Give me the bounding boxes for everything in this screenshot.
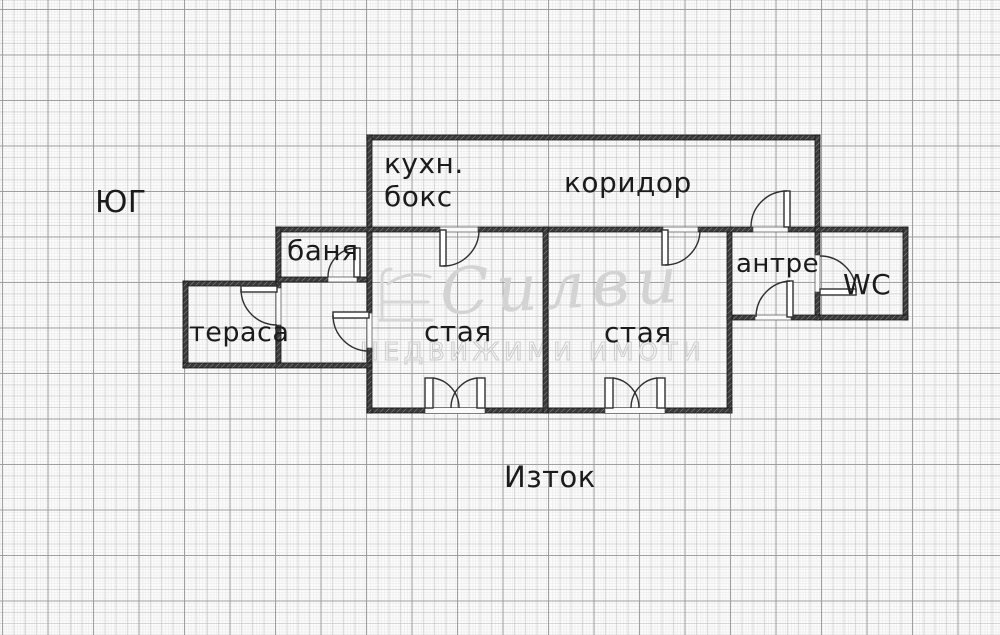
room-label-room-right: стая bbox=[604, 317, 672, 350]
room-label-hall: антре bbox=[736, 249, 819, 279]
door-arc bbox=[756, 281, 790, 317]
french-window-room1 bbox=[425, 378, 485, 408]
wall-right-upper bbox=[815, 135, 820, 255]
wall-rooms-divider bbox=[543, 227, 548, 413]
wall-bath-bottom-a bbox=[276, 277, 328, 282]
wall-bath-bottom-b bbox=[357, 277, 367, 282]
opening-hall-bottom-door bbox=[755, 315, 791, 320]
wall-hall-bottom-right bbox=[791, 315, 820, 320]
compass-south-label: ЮГ bbox=[95, 185, 147, 220]
wall-left-upper bbox=[367, 135, 372, 313]
room-label-kitchen: кухн.бокс bbox=[384, 148, 464, 214]
room-label-corridor: коридор bbox=[564, 167, 692, 200]
wall-wc-bottom bbox=[815, 315, 908, 320]
wall-wc-top bbox=[815, 227, 908, 232]
wall-bottom-a bbox=[367, 408, 425, 413]
opening-bath-door bbox=[328, 277, 357, 282]
door-kitchen-room1 bbox=[440, 230, 479, 266]
door-arc bbox=[333, 315, 369, 351]
wall-terrace-top bbox=[183, 281, 276, 286]
room-label-room-left: стая bbox=[424, 316, 492, 349]
opening-window-room1 bbox=[425, 408, 485, 414]
wall-top bbox=[367, 135, 820, 140]
wall-interior-h-b bbox=[478, 227, 663, 232]
floor-plan-page: { "compass": { "south_label": "ЮГ", "eas… bbox=[0, 0, 1000, 635]
floor-plan-drawing bbox=[0, 0, 1000, 635]
window-arc bbox=[451, 378, 477, 408]
kitchen-line1: кухн. bbox=[384, 147, 464, 180]
door-corridor-room2 bbox=[662, 230, 700, 265]
door-arc bbox=[751, 191, 787, 227]
opening-hall-top-door bbox=[753, 227, 788, 232]
french-window-room2 bbox=[605, 378, 665, 408]
room-label-wc: WC bbox=[843, 269, 891, 302]
door-vestibule-room1 bbox=[333, 312, 369, 351]
wall-left-lower bbox=[367, 348, 372, 413]
wall-interior-h-c bbox=[698, 227, 753, 232]
wall-bottom-c bbox=[665, 408, 732, 413]
kitchen-line2: бокс bbox=[384, 180, 453, 213]
room-label-terrace: тераса bbox=[189, 317, 289, 349]
wall-terrace-bottom bbox=[183, 363, 372, 368]
wall-interior-h-d bbox=[788, 227, 815, 232]
room-label-bath: баня bbox=[287, 235, 359, 268]
door-arc bbox=[443, 230, 479, 266]
wall-room2-right bbox=[727, 227, 732, 413]
window-arc bbox=[631, 378, 657, 408]
wall-interior-h-a bbox=[276, 227, 440, 232]
compass-east-label: Изток bbox=[504, 461, 596, 495]
opening-window-room2 bbox=[605, 408, 665, 414]
door-hall-bottom bbox=[756, 281, 793, 317]
door-corridor-hall bbox=[751, 191, 790, 227]
wall-terrace-left bbox=[183, 281, 188, 368]
door-arc bbox=[665, 230, 700, 265]
wall-wc-right bbox=[903, 227, 908, 320]
